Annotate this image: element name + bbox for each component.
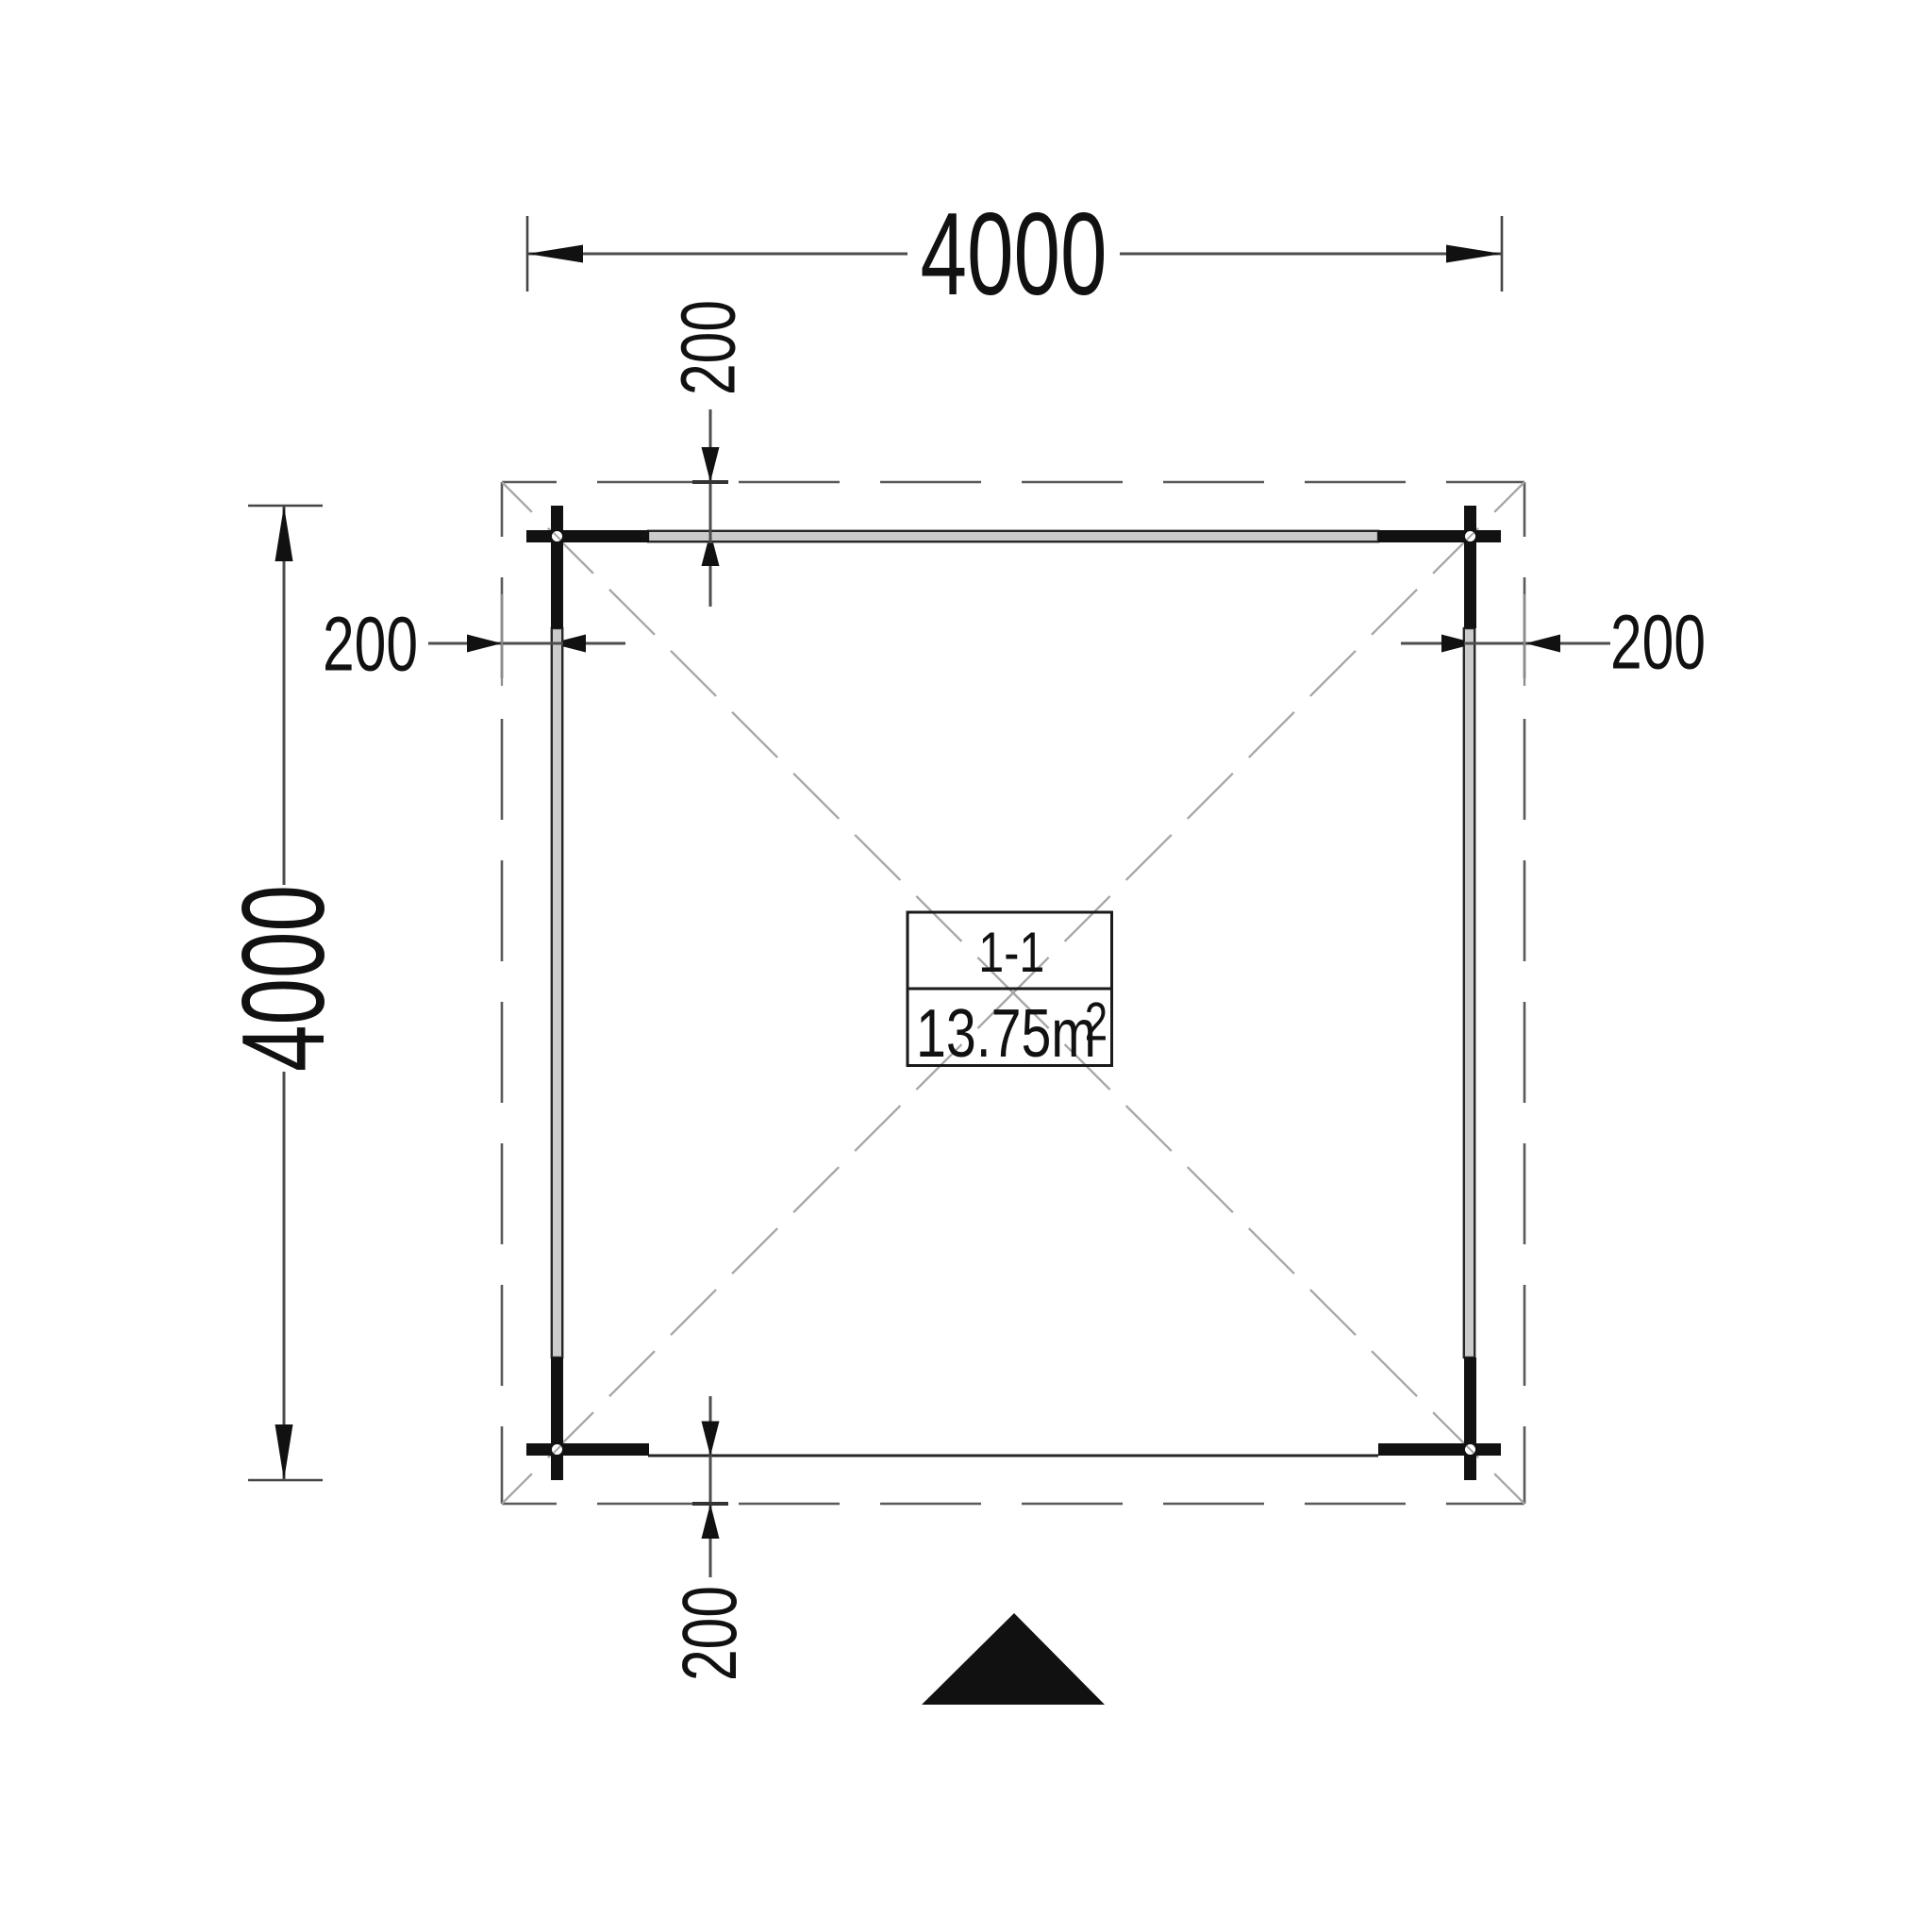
svg-text:4000: 4000 (921, 190, 1108, 320)
svg-text:200: 200 (666, 300, 752, 395)
svg-text:200: 200 (667, 1586, 753, 1681)
svg-text:13.75m: 13.75m (916, 996, 1096, 1072)
svg-text:200: 200 (1610, 600, 1706, 686)
svg-text:1-1: 1-1 (978, 921, 1044, 984)
svg-text:200: 200 (323, 602, 418, 688)
svg-text:4000: 4000 (219, 885, 349, 1072)
